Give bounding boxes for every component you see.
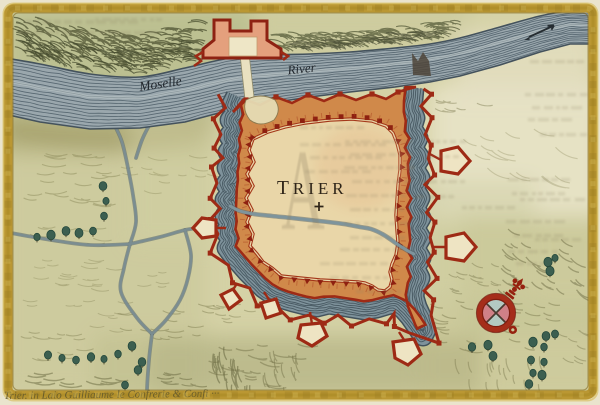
- svg-text:TRIER: TRIER: [277, 178, 348, 199]
- svg-text:River: River: [286, 59, 317, 77]
